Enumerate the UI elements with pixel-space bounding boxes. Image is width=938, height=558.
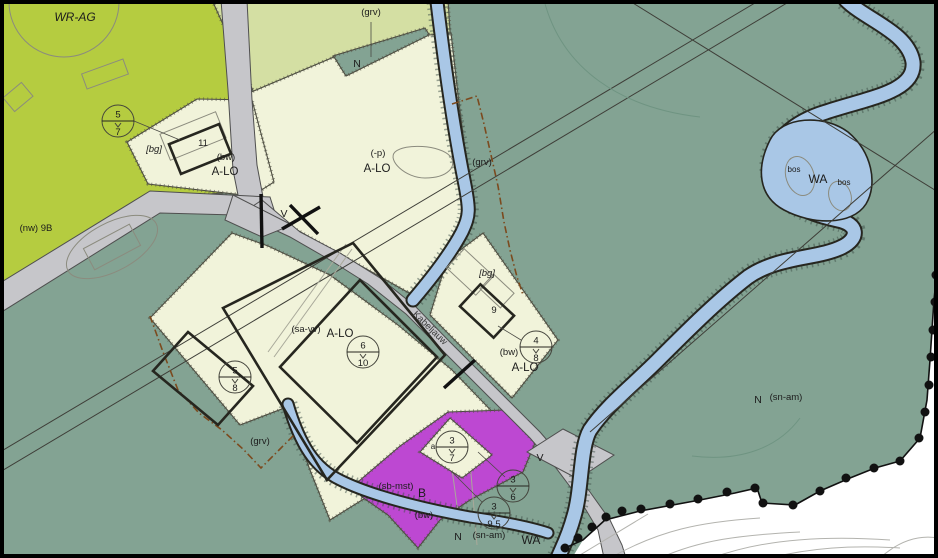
measure-bottom: 8 — [232, 383, 237, 394]
zoning-map-viewport: 5 7 5 8 6 10 4 8 3 7 3 6 3 9,5 WR-AG (gr… — [0, 0, 938, 558]
measure-top: 5 — [232, 366, 237, 377]
label-wa-river: WA — [809, 172, 828, 186]
measure-top: 3 — [491, 502, 496, 513]
label-a-small: a — [431, 442, 436, 451]
measure-bottom: 7 — [449, 453, 454, 464]
measure-top: 6 — [360, 341, 365, 352]
measure-top: 3 — [510, 475, 515, 486]
measure-bottom: 10 — [358, 358, 369, 369]
label-alo-west: A-LO — [212, 166, 239, 178]
label-sn-am-east: (sn-am) — [770, 392, 803, 403]
label-alo-central: A-LO — [327, 328, 354, 340]
measure-bottom: 7 — [115, 127, 120, 138]
label-bg-east: [bg] — [478, 268, 495, 279]
label-nw-9b: (nw) 9B — [20, 223, 53, 234]
maatvoering-symbol-3-6: 3 6 — [497, 470, 529, 503]
maatvoering-symbol-3-7: 3 7 — [436, 431, 468, 464]
label-huisnr-9: 9 — [491, 305, 496, 316]
label-sn-am-south: (sn-am) — [473, 530, 506, 541]
measure-top: 5 — [115, 110, 120, 121]
label-bw-west: (bw) — [217, 152, 235, 163]
maatvoering-symbol-5-7: 5 7 — [102, 105, 134, 138]
label-bos-2: bos — [838, 178, 851, 187]
label-bos-1: bos — [788, 165, 801, 174]
label-alo-north: A-LO — [364, 163, 391, 175]
label-huisnr-11: 11 — [198, 138, 208, 149]
label-grv-top: (grv) — [361, 7, 381, 18]
label-alo-east: A-LO — [512, 362, 539, 374]
label-b-zone: B — [418, 486, 426, 500]
label-bw-east: (bw) — [500, 347, 518, 358]
label-p: (-p) — [371, 148, 386, 159]
label-sa-vv: (sa-vv) — [291, 324, 320, 335]
maatvoering-symbol-3-95: 3 9,5 — [478, 497, 510, 530]
label-grv-east: (grv) — [472, 157, 492, 168]
label-n-south: N — [454, 531, 462, 543]
zoning-map-canvas[interactable]: 5 7 5 8 6 10 4 8 3 7 3 6 3 9,5 WR-AG (gr… — [0, 0, 938, 558]
label-n-east: N — [754, 394, 762, 406]
label-bg-west: [bg] — [145, 144, 162, 155]
measure-bottom: 9,5 — [487, 519, 500, 530]
label-wa-south: WA — [522, 533, 541, 547]
measure-bottom: 6 — [510, 492, 515, 503]
measure-top: 4 — [533, 336, 538, 347]
label-bw-b: (bw) — [415, 510, 433, 521]
label-n-top: N — [353, 58, 361, 70]
label-v-north: V — [280, 208, 287, 220]
maatvoering-symbol-6-10: 6 10 — [347, 336, 379, 369]
maatvoering-symbol-5-8: 5 8 — [219, 361, 251, 394]
measure-top: 3 — [449, 436, 454, 447]
label-sb-mst: (sb-mst) — [379, 481, 414, 492]
label-grv-sw: (grv) — [250, 436, 270, 447]
maatvoering-symbol-4-8: 4 8 — [520, 331, 552, 364]
label-wr-ag: WR-AG — [54, 10, 95, 24]
label-v-south: V — [536, 452, 543, 464]
